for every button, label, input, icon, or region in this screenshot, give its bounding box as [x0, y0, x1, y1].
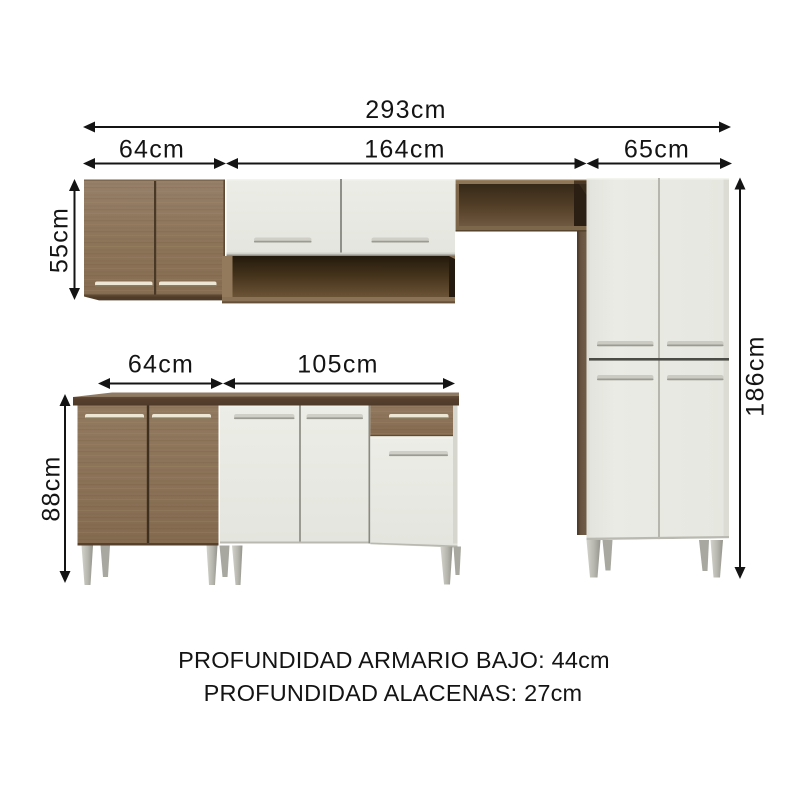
svg-text:105cm: 105cm	[297, 351, 379, 379]
svg-text:186cm: 186cm	[742, 335, 770, 417]
svg-text:164cm: 164cm	[364, 136, 446, 164]
svg-text:PROFUNDIDAD ALACENAS: 27cm: PROFUNDIDAD ALACENAS: 27cm	[204, 680, 583, 706]
svg-text:64cm: 64cm	[128, 351, 194, 379]
svg-text:PROFUNDIDAD ARMARIO BAJO: 44cm: PROFUNDIDAD ARMARIO BAJO: 44cm	[178, 647, 610, 673]
svg-text:65cm: 65cm	[624, 136, 690, 164]
svg-text:64cm: 64cm	[119, 136, 185, 164]
svg-text:55cm: 55cm	[46, 207, 74, 273]
svg-text:293cm: 293cm	[365, 96, 447, 124]
svg-text:88cm: 88cm	[38, 455, 66, 521]
